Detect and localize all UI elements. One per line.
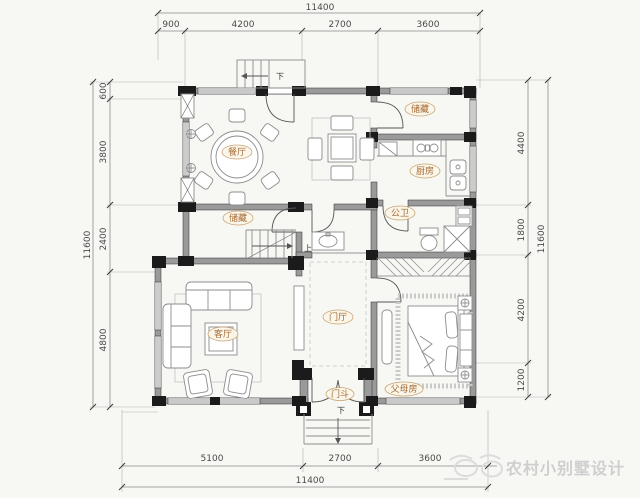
dimension-chain-right: 4400 1800 4200 1200 11600 xyxy=(476,77,551,400)
room-label-storage-mid: 储藏 xyxy=(223,211,253,225)
dim-right-total: 11600 xyxy=(537,224,547,253)
svg-text:储藏: 储藏 xyxy=(411,103,429,115)
terrace-hatch xyxy=(377,258,470,276)
nightstand-top xyxy=(458,296,472,310)
svg-text:门厅: 门厅 xyxy=(329,311,347,323)
living-furniture xyxy=(163,282,304,399)
door-storage-top xyxy=(377,102,403,128)
window-right-kitchen xyxy=(470,146,476,192)
svg-text:门斗: 门斗 xyxy=(331,388,349,400)
bench xyxy=(382,310,392,364)
watermark: 农村小别墅设计 xyxy=(444,455,625,479)
door-wash-area xyxy=(312,210,334,232)
toilet xyxy=(420,228,438,251)
window-right-storage xyxy=(470,100,476,128)
stair-down-label-top: 下 xyxy=(276,72,284,81)
wash-vanity xyxy=(312,232,344,250)
svg-text:厨房: 厨房 xyxy=(416,165,434,177)
dim-bottom-2: 3600 xyxy=(419,454,442,464)
window-top-dining xyxy=(198,88,256,94)
tv-cabinet xyxy=(294,286,304,350)
dim-left-total: 11600 xyxy=(83,230,93,259)
dim-left-1: 3800 xyxy=(99,140,109,163)
bedroom-furniture xyxy=(382,296,472,386)
bath-sink xyxy=(456,206,472,226)
room-label-storage-top: 储藏 xyxy=(405,102,435,116)
dim-bottom-1: 2700 xyxy=(329,454,352,464)
armchair-right xyxy=(223,369,253,399)
dim-top-3: 3600 xyxy=(417,20,440,30)
dim-left-0: 600 xyxy=(99,82,109,99)
kitchen-sink xyxy=(450,160,466,190)
room-label-kitchen: 厨房 xyxy=(410,164,440,178)
window-top-storage xyxy=(390,88,448,94)
room-label-vestibule: 门斗 xyxy=(326,388,354,401)
watermark-text: 农村小别墅设计 xyxy=(505,459,625,478)
dim-top-2: 2700 xyxy=(329,20,352,30)
watermark-logo xyxy=(444,455,502,479)
wardrobe xyxy=(460,314,472,366)
dim-right-2: 4200 xyxy=(517,298,527,321)
dim-right-1: 1800 xyxy=(517,218,527,241)
room-label-dining: 餐厅 xyxy=(222,145,252,159)
svg-text:公卫: 公卫 xyxy=(391,208,409,219)
sofa-long xyxy=(186,282,252,310)
window-left-living-a xyxy=(155,282,161,330)
floor-plan-svg: 11400 900 4200 2700 3600 11600 600 3800 … xyxy=(0,0,640,498)
nightstand-bottom xyxy=(458,368,472,382)
corner-shower xyxy=(444,226,470,252)
floor-plan-canvas: 11400 900 4200 2700 3600 11600 600 3800 … xyxy=(0,0,640,498)
stair-up-label: 上 xyxy=(304,244,312,253)
window-left-living-b xyxy=(155,336,161,388)
room-label-living: 客厅 xyxy=(208,327,238,341)
dimension-chain-top: 11400 900 4200 2700 3600 xyxy=(155,3,483,88)
window-bottom-living-b xyxy=(218,398,260,404)
exterior-stair-top: 下 xyxy=(237,60,305,88)
room-label-foyer: 门厅 xyxy=(323,310,353,324)
window-bottom-living-a xyxy=(168,398,212,404)
room-labels: 餐厅 储藏 厨房 公卫 储藏 门厅 客厅 父母房 xyxy=(208,102,440,401)
stair-down-label-entry: 下 xyxy=(337,406,345,415)
dim-top-0: 900 xyxy=(162,20,179,30)
room-label-bath: 公卫 xyxy=(385,206,415,220)
dimension-chain-bottom: 5100 2700 3600 11400 xyxy=(119,410,497,492)
dim-bottom-0: 5100 xyxy=(201,454,224,464)
dim-right-3: 1200 xyxy=(517,368,527,391)
sofa-side xyxy=(163,304,191,368)
svg-text:父母房: 父母房 xyxy=(390,383,417,395)
dim-left-3: 4800 xyxy=(99,328,109,351)
svg-text:客厅: 客厅 xyxy=(214,328,232,340)
dim-top-1: 4200 xyxy=(232,20,255,30)
dim-top-total: 11400 xyxy=(306,3,335,13)
bathroom-fixtures xyxy=(420,206,472,252)
family-table xyxy=(308,116,374,180)
room-label-parents: 父母房 xyxy=(385,382,423,396)
dim-left-2: 2400 xyxy=(99,227,109,250)
dim-right-0: 4400 xyxy=(517,131,527,154)
armchair-left xyxy=(183,369,213,399)
door-north-entry xyxy=(266,94,294,122)
svg-text:储藏: 储藏 xyxy=(229,212,247,224)
stove xyxy=(413,140,441,156)
window-bottom-bedroom xyxy=(386,398,460,404)
dim-bottom-total: 11400 xyxy=(296,476,325,486)
svg-text:餐厅: 餐厅 xyxy=(228,146,246,158)
